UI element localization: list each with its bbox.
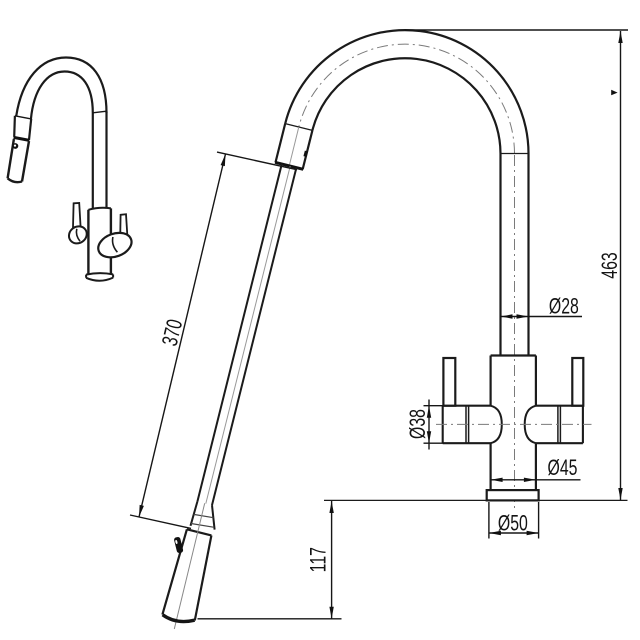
- svg-text:463: 463: [599, 252, 623, 278]
- svg-text:Ø28: Ø28: [549, 295, 579, 319]
- svg-text:Ø50: Ø50: [498, 512, 528, 536]
- svg-text:117: 117: [307, 547, 331, 572]
- svg-text:Ø38: Ø38: [406, 409, 430, 439]
- svg-text:Ø45: Ø45: [548, 457, 578, 481]
